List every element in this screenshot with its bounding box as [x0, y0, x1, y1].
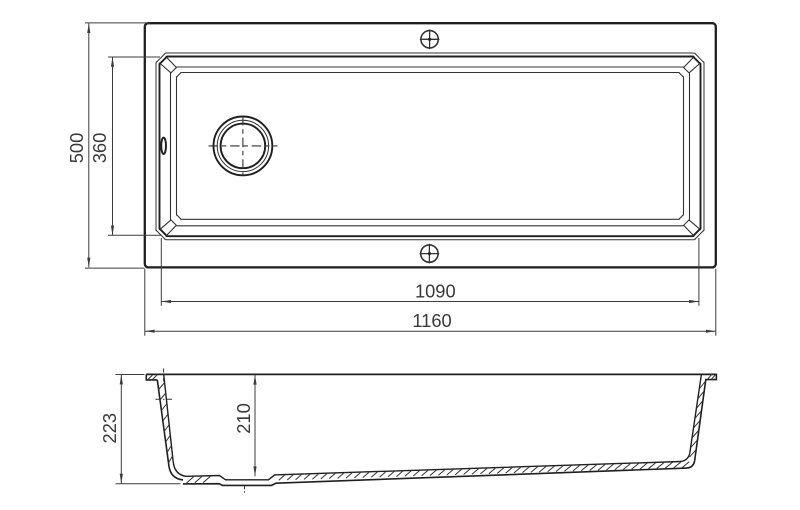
- svg-text:1160: 1160: [412, 310, 451, 331]
- svg-text:500: 500: [66, 133, 87, 164]
- svg-text:360: 360: [89, 133, 110, 164]
- svg-text:1090: 1090: [415, 280, 456, 301]
- svg-text:223: 223: [99, 413, 120, 444]
- svg-text:210: 210: [233, 403, 254, 434]
